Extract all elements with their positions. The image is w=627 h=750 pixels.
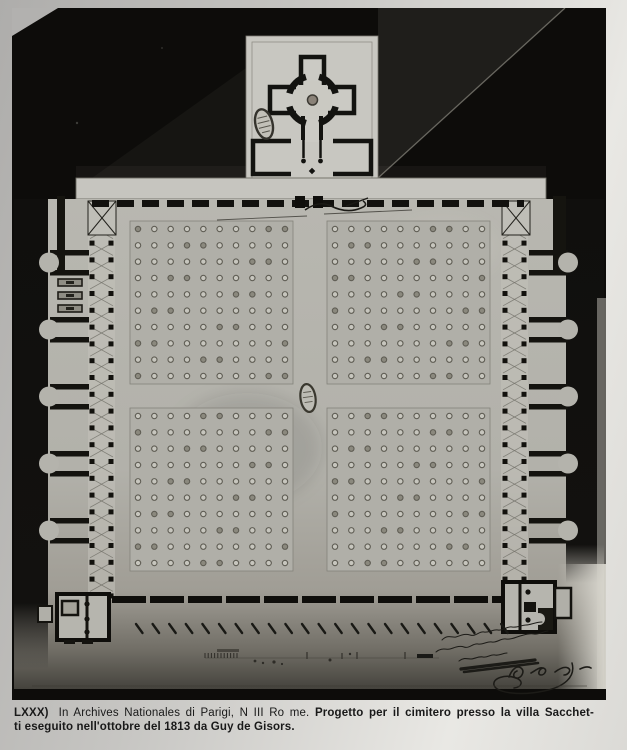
caption-title-part2: ti eseguito nell'ottobre del 1813 da Guy… bbox=[14, 721, 614, 735]
caption-reference: LXXX) bbox=[14, 707, 49, 719]
entrance-pier bbox=[295, 196, 305, 208]
cemetery-plan-drawing bbox=[12, 8, 606, 700]
terrace-bar bbox=[76, 178, 546, 199]
caption: LXXX)In Archives Nationales di Parigi, N… bbox=[14, 707, 614, 734]
photo-right-edge-light bbox=[597, 298, 606, 689]
caption-line-1: LXXX)In Archives Nationales di Parigi, N… bbox=[14, 707, 614, 721]
book-page: LXXX)In Archives Nationales di Parigi, N… bbox=[0, 0, 627, 750]
caption-archive: In Archives Nationales di Parigi, N III … bbox=[59, 707, 310, 719]
rotunda-center bbox=[308, 95, 318, 105]
entrance-pier bbox=[313, 196, 323, 208]
caption-title-part1: Progetto per il cimitero presso la villa… bbox=[315, 707, 594, 719]
photograph-of-plan bbox=[12, 8, 606, 700]
